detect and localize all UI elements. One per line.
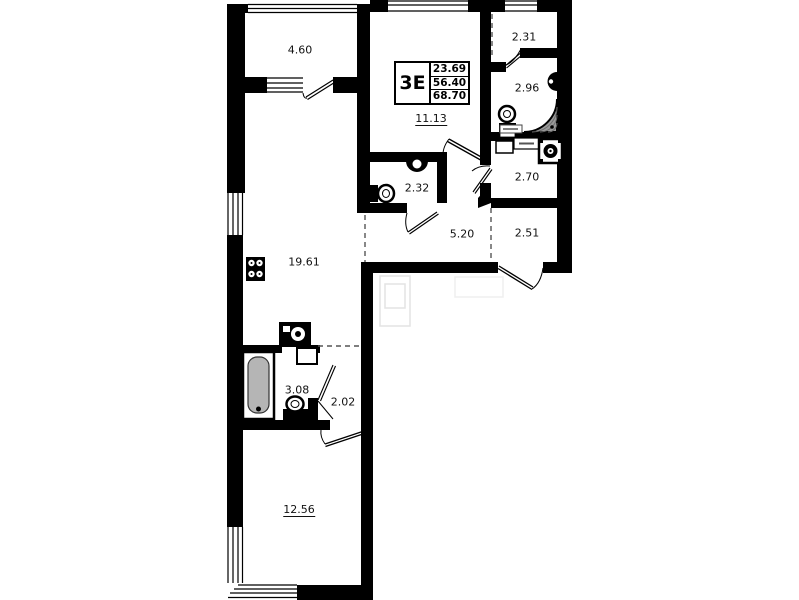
- bathtub-icon: [243, 352, 274, 419]
- room-label-bathroom: 3.08: [285, 384, 310, 397]
- door-bathroom: [318, 365, 336, 419]
- window-balcony-top: [248, 4, 357, 13]
- room-label-living-room: 11.13: [415, 112, 447, 126]
- room-label-wc: 2.32: [405, 182, 430, 195]
- door-living: [443, 139, 483, 161]
- room-label-corridor: 5.20: [450, 228, 475, 241]
- washing-machine-icon-hall: [539, 139, 562, 163]
- door-entrance: [498, 266, 543, 290]
- room-label-bathroom-top: 2.96: [515, 82, 540, 95]
- toilet-icon-wc: [369, 185, 394, 202]
- apartment-area-value: 56.40: [431, 77, 468, 91]
- total-area-value: 68.70: [431, 90, 468, 103]
- ghost-furniture: [380, 276, 503, 326]
- apartment-type-label: 3Е: [396, 63, 431, 103]
- stove-icon: [246, 257, 265, 281]
- living-area-value: 23.69: [431, 63, 468, 77]
- sink-icon-wc: [406, 160, 428, 173]
- room-label-hall-right: 2.70: [515, 171, 540, 184]
- shower-icon: [524, 99, 557, 132]
- door-bathroom-top: [505, 49, 525, 68]
- window-corner-horizontal: [227, 583, 297, 599]
- washing-machine-icon: [279, 322, 311, 347]
- title-block-areas: 23.69 56.40 68.70: [431, 63, 468, 103]
- floor-plan: 3Е 23.69 56.40 68.70 4.60 2.31 2.96 11.1…: [0, 0, 799, 600]
- door-wc: [406, 212, 439, 234]
- sink-box-icon: [297, 348, 317, 364]
- room-label-entry: 2.51: [515, 227, 540, 240]
- room-label-kitchen-living: 19.61: [288, 256, 320, 269]
- room-label-balcony: 4.60: [288, 44, 313, 57]
- door-balcony: [303, 80, 335, 100]
- toilet-icon-bathroom: [283, 397, 308, 421]
- room-label-hall-bottom: 2.02: [331, 396, 356, 409]
- room-label-bedroom: 12.56: [283, 503, 315, 517]
- window-hall-top: [505, 0, 537, 12]
- sink-icon-bathroom-top: [548, 72, 557, 91]
- room-label-hall-top: 2.31: [512, 31, 537, 44]
- window-living-top: [388, 0, 468, 12]
- window-balcony-low: [267, 77, 303, 93]
- door-bedroom: [321, 430, 365, 447]
- title-block: 3Е 23.69 56.40 68.70: [394, 61, 470, 105]
- window-kitchen-left: [227, 193, 243, 235]
